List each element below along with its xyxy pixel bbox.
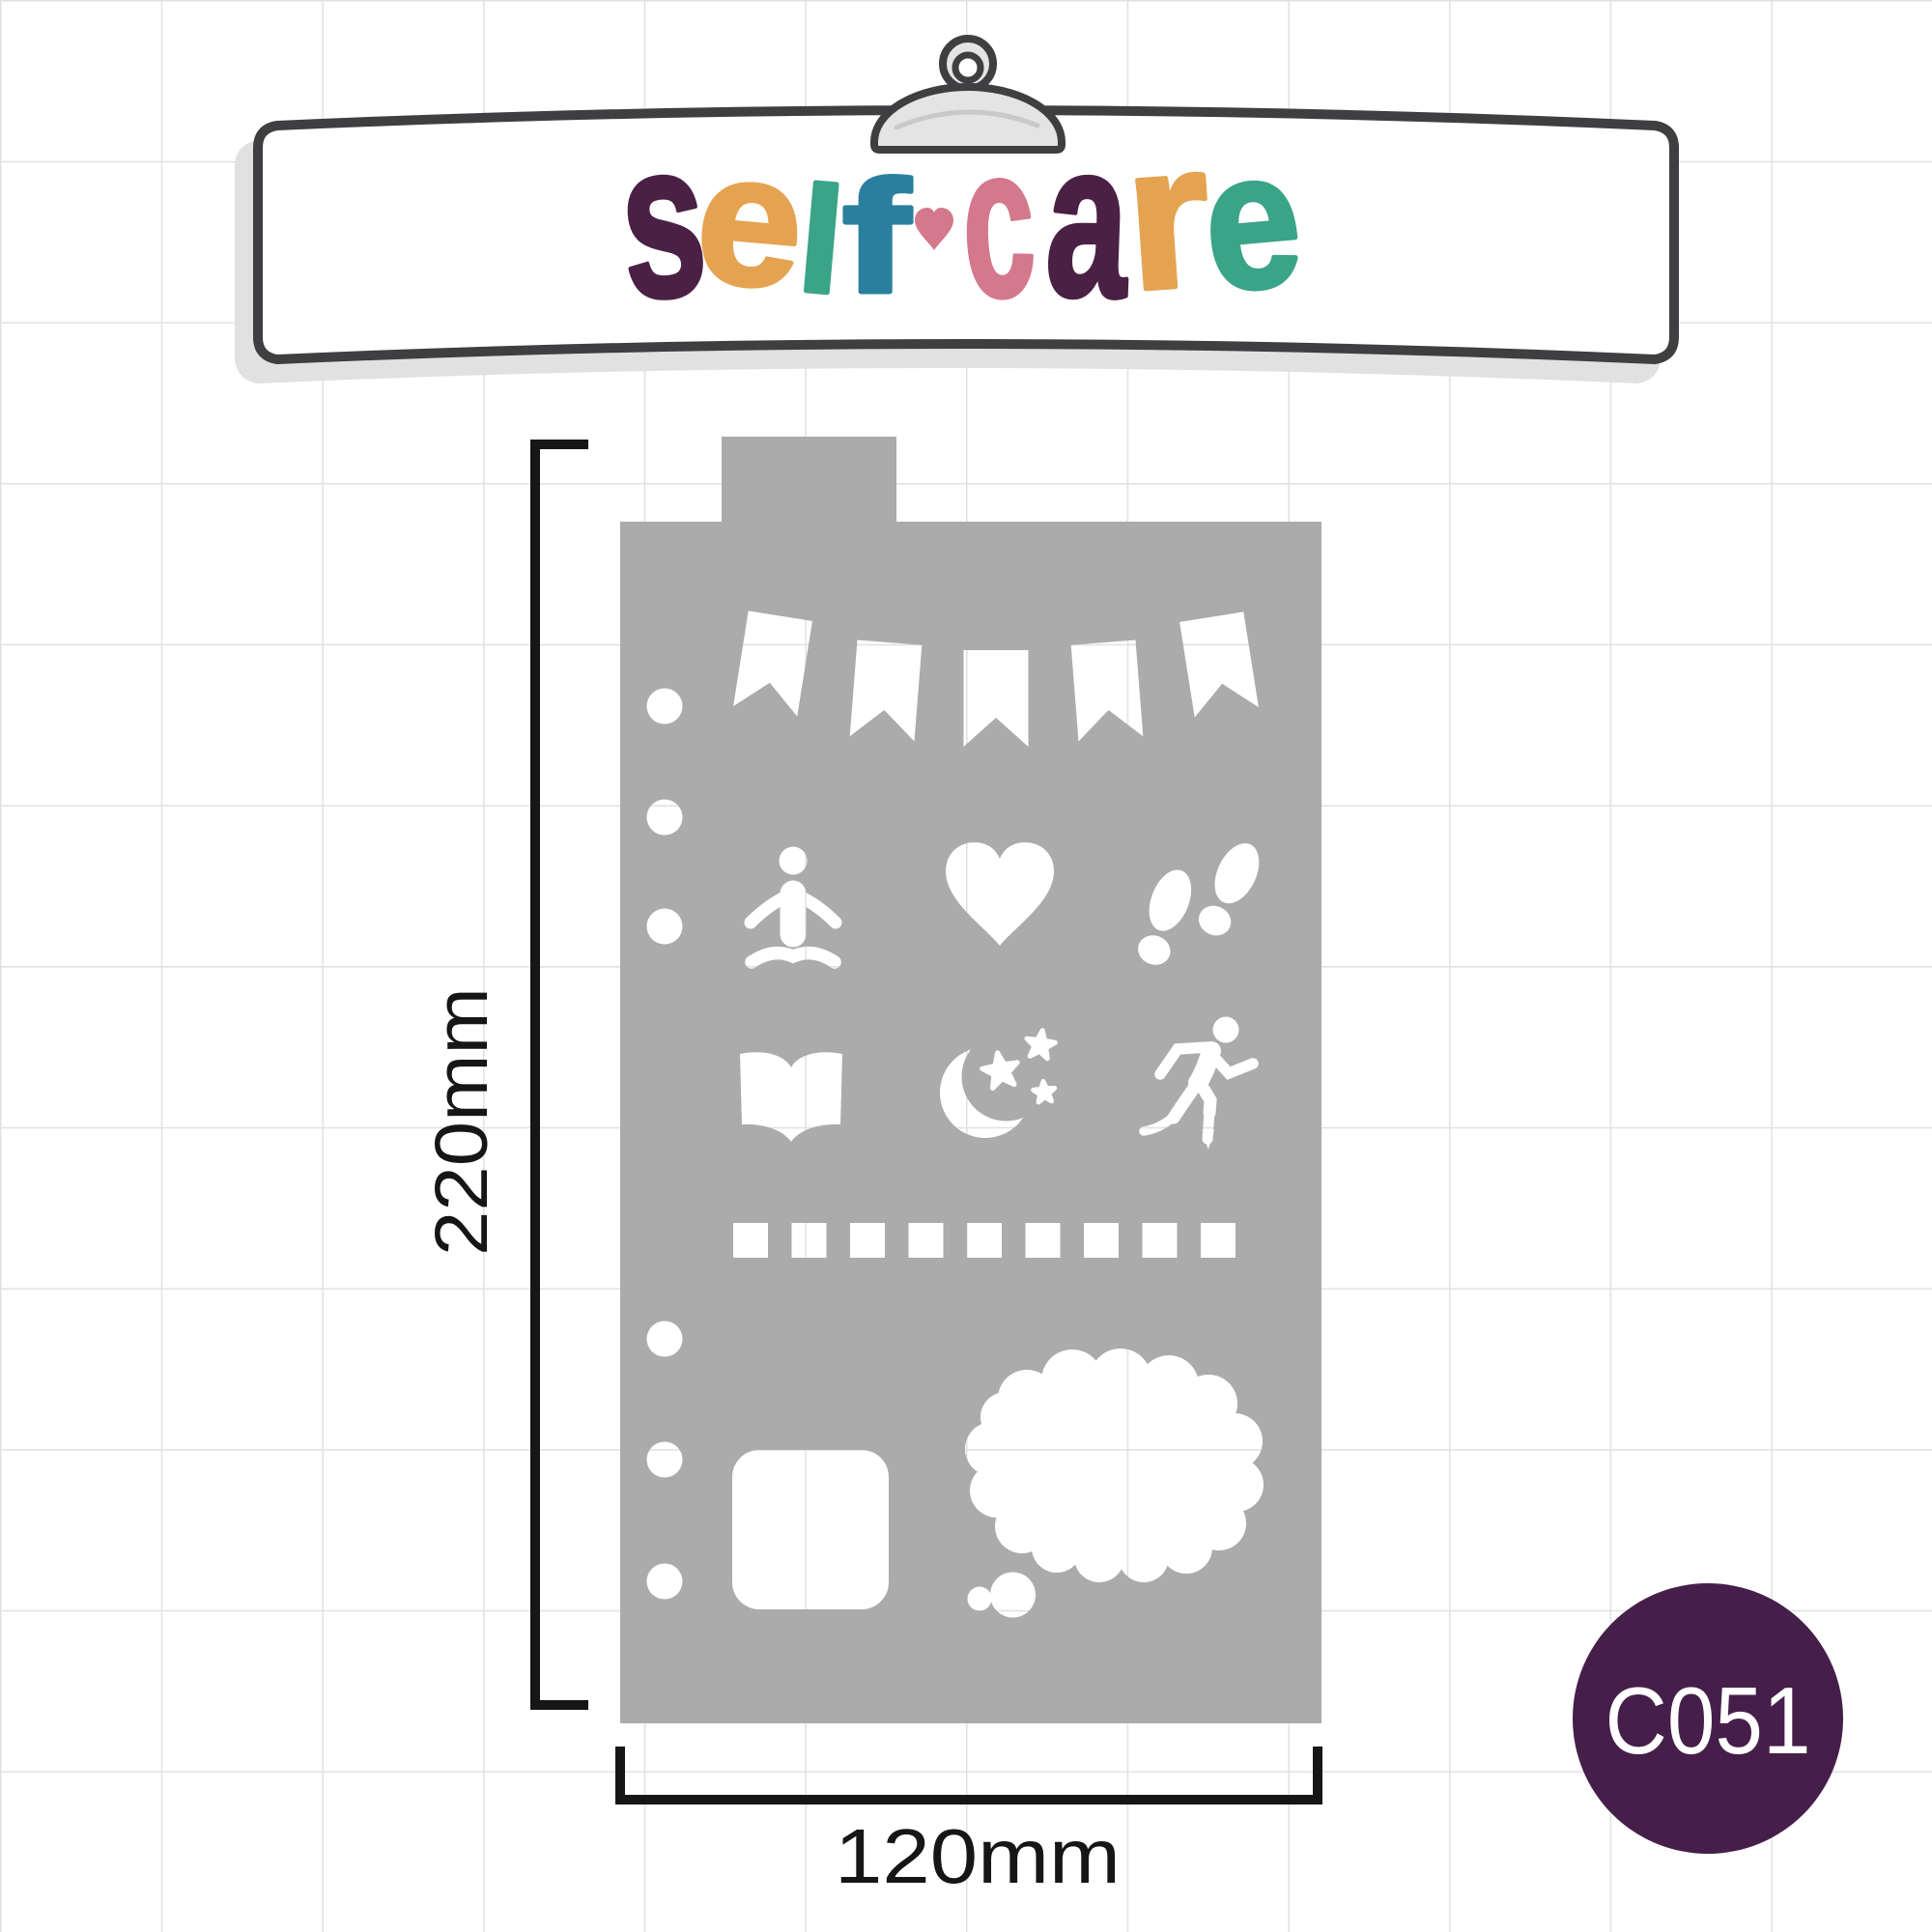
- svg-text:c: c: [956, 100, 1040, 344]
- svg-text:e: e: [1196, 109, 1309, 332]
- svg-text:C051: C051: [1605, 1667, 1811, 1774]
- svg-text:220mm: 220mm: [420, 987, 503, 1256]
- svg-text:e: e: [690, 112, 811, 328]
- svg-text:f: f: [842, 148, 911, 326]
- svg-text:120mm: 120mm: [835, 1813, 1121, 1899]
